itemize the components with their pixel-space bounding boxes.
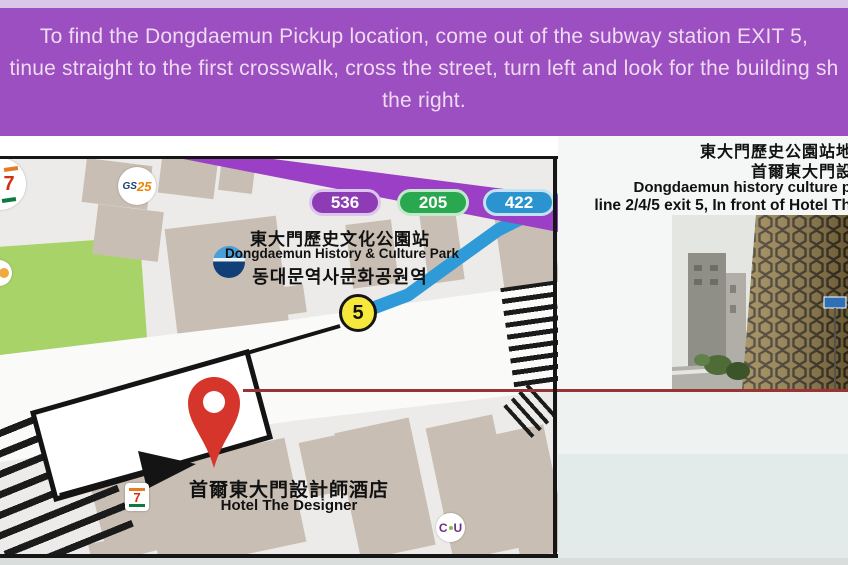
seven-eleven-icon: 7 — [125, 483, 149, 511]
hotel-name-en: Hotel The Designer — [221, 497, 358, 514]
instruction-banner: To find the Dongdaemun Pickup location, … — [0, 8, 848, 136]
instruction-line-3: the right. — [382, 89, 466, 113]
photo-bush — [726, 362, 750, 380]
cu-c: C — [439, 521, 448, 535]
location-pin-hole — [203, 391, 225, 413]
cu-dot — [449, 526, 453, 530]
seven-eleven-7: 7 — [3, 173, 14, 196]
gs25-gs: GS — [123, 181, 137, 192]
bus-badge-205: 205 — [397, 189, 469, 216]
cu-icon: C U — [436, 513, 465, 542]
pin-to-photo-connector — [243, 389, 848, 392]
bus-badge-422: 422 — [483, 189, 555, 216]
exit-5-marker: 5 — [339, 294, 377, 332]
station-name-en: Dongdaemun History & Culture Park — [225, 246, 459, 261]
caption-line-en-1: Dongdaemun history culture p — [633, 179, 848, 196]
exit-connector-line — [247, 326, 340, 353]
instruction-line-2: tinue straight to the first crosswalk, c… — [9, 57, 838, 81]
seven-eleven-stripe — [4, 166, 18, 172]
photo-bush — [694, 354, 710, 366]
station-name-ko: 동대문역사문화공원역 — [252, 263, 428, 289]
cu-u: U — [454, 521, 463, 535]
instruction-line-1: To find the Dongdaemun Pickup location, … — [40, 25, 808, 49]
gs25-25: 25 — [137, 179, 151, 194]
seven-eleven-7: 7 — [133, 491, 140, 504]
bottom-strip — [0, 558, 848, 565]
seven-eleven-stripe — [129, 504, 145, 507]
seven-eleven-stripe — [2, 197, 16, 203]
top-strip — [0, 0, 848, 8]
right-panel-background — [558, 392, 848, 454]
pickup-guide-page: To find the Dongdaemun Pickup location, … — [0, 0, 848, 565]
photo-street-sign — [824, 297, 846, 308]
bus-badge-536: 536 — [309, 189, 381, 216]
pickup-map: 536 205 422 東大門歷史文化公園站 Dongdaemun Histor… — [0, 156, 558, 558]
partial-store-dot — [0, 268, 9, 278]
caption-line-en-2: line 2/4/5 exit 5, In front of Hotel Th — [594, 197, 848, 215]
right-panel-background — [558, 454, 848, 558]
gs25-icon: GS25 — [118, 167, 156, 205]
map-border — [0, 156, 558, 159]
hotel-street-photo — [672, 215, 848, 391]
map-border — [553, 156, 557, 558]
